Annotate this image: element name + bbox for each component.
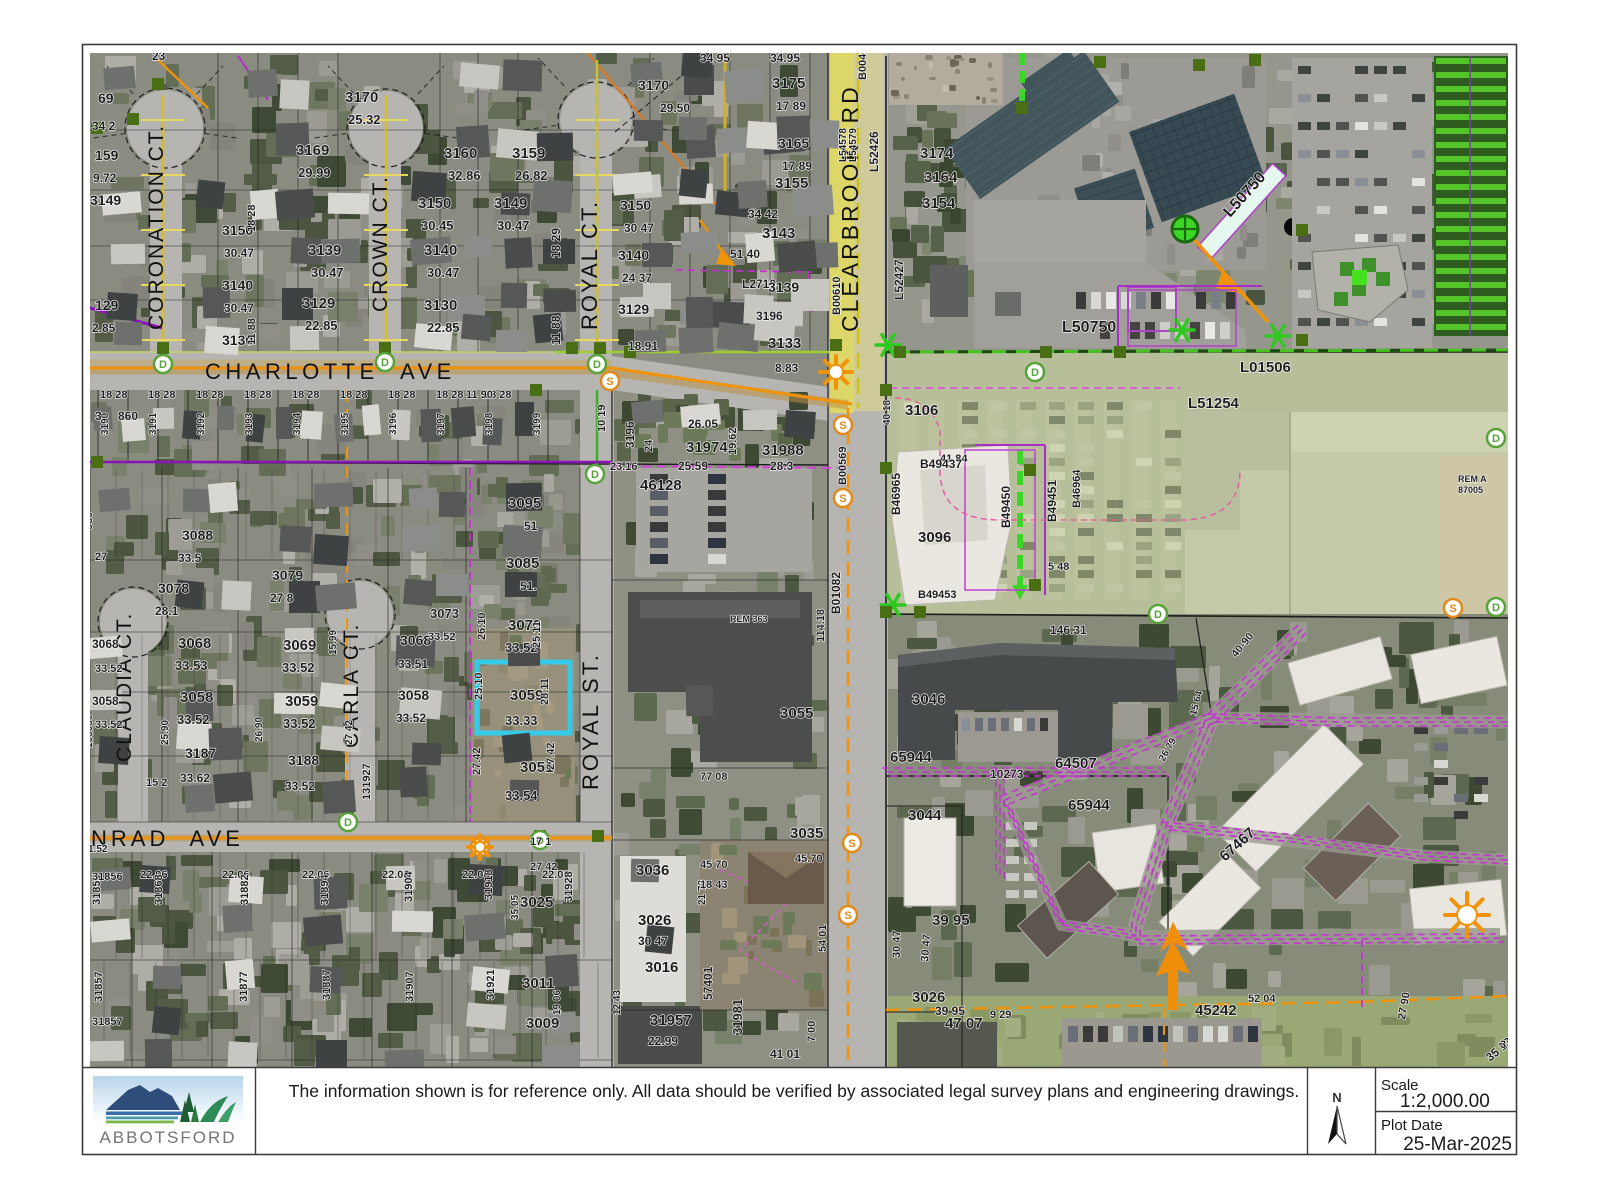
svg-text:29.50: 29.50 bbox=[660, 101, 690, 115]
svg-text:33.52: 33.52 bbox=[95, 663, 123, 675]
svg-text:3193: 3193 bbox=[244, 412, 255, 435]
svg-text:24: 24 bbox=[643, 439, 655, 452]
svg-text:3079: 3079 bbox=[272, 567, 303, 583]
svg-text:L54579: L54579 bbox=[848, 128, 859, 162]
svg-text:ABBOTSFORD: ABBOTSFORD bbox=[99, 1128, 236, 1147]
svg-text:Plot Date: Plot Date bbox=[1381, 1117, 1443, 1134]
svg-text:D: D bbox=[1492, 602, 1500, 614]
svg-text:34.95: 34.95 bbox=[770, 51, 800, 65]
svg-text:28.1: 28.1 bbox=[155, 604, 179, 618]
svg-text:S: S bbox=[844, 910, 851, 922]
svg-text:11 90: 11 90 bbox=[466, 389, 493, 401]
svg-text:25.90: 25.90 bbox=[160, 720, 171, 745]
svg-text:3188: 3188 bbox=[288, 752, 319, 768]
svg-text:3078: 3078 bbox=[158, 580, 189, 596]
svg-text:9 29: 9 29 bbox=[990, 1009, 1011, 1021]
svg-text:30.47: 30.47 bbox=[224, 246, 254, 260]
svg-text:3106: 3106 bbox=[905, 402, 938, 419]
svg-text:18 43: 18 43 bbox=[700, 879, 728, 891]
svg-text:3036: 3036 bbox=[636, 862, 669, 879]
svg-text:3068: 3068 bbox=[178, 635, 211, 652]
svg-text:3129: 3129 bbox=[618, 301, 649, 317]
svg-text:3170: 3170 bbox=[345, 89, 378, 106]
svg-text:27.42: 27.42 bbox=[545, 742, 557, 770]
svg-text:860: 860 bbox=[118, 409, 138, 423]
svg-text:31988: 31988 bbox=[762, 442, 804, 459]
svg-text:18 28: 18 28 bbox=[388, 389, 416, 401]
svg-text:N: N bbox=[1332, 1090, 1341, 1105]
svg-text:17 1: 17 1 bbox=[530, 836, 551, 848]
svg-text:3174: 3174 bbox=[920, 145, 954, 162]
svg-text:3175: 3175 bbox=[772, 75, 805, 92]
svg-text:27: 27 bbox=[95, 551, 107, 563]
svg-text:3192: 3192 bbox=[196, 412, 207, 435]
svg-text:18 28: 18 28 bbox=[292, 389, 320, 401]
svg-text:D: D bbox=[1031, 367, 1039, 379]
svg-text:3068: 3068 bbox=[400, 632, 431, 648]
svg-text:3011: 3011 bbox=[522, 975, 555, 992]
svg-text:3154: 3154 bbox=[922, 195, 956, 212]
svg-text:33.52: 33.52 bbox=[283, 716, 316, 731]
svg-text:3009: 3009 bbox=[526, 1015, 559, 1032]
svg-text:34 95: 34 95 bbox=[700, 51, 730, 65]
svg-text:3058: 3058 bbox=[180, 689, 213, 706]
svg-text:30.47: 30.47 bbox=[311, 265, 344, 280]
svg-text:33.53: 33.53 bbox=[175, 658, 208, 673]
svg-text:30.45: 30.45 bbox=[421, 218, 454, 233]
svg-text:3044: 3044 bbox=[908, 807, 942, 824]
svg-text:15 2: 15 2 bbox=[146, 777, 167, 789]
svg-text:131927: 131927 bbox=[361, 763, 373, 800]
svg-text:3095: 3095 bbox=[508, 495, 541, 512]
svg-text:19.62: 19.62 bbox=[727, 427, 739, 455]
svg-text:3059: 3059 bbox=[285, 693, 318, 710]
svg-text:31918: 31918 bbox=[483, 869, 495, 900]
svg-text:CLAUDIA CT.: CLAUDIA CT. bbox=[113, 612, 136, 762]
svg-text:25.10: 25.10 bbox=[473, 672, 485, 700]
svg-text:3197: 3197 bbox=[436, 412, 447, 435]
svg-text:30.47: 30.47 bbox=[224, 301, 254, 315]
svg-text:B49437: B49437 bbox=[920, 457, 962, 471]
svg-text:3: 3 bbox=[95, 409, 102, 423]
svg-text:30.47: 30.47 bbox=[497, 218, 530, 233]
svg-text:18.91: 18.91 bbox=[628, 339, 658, 353]
svg-text:30.47: 30.47 bbox=[427, 265, 460, 280]
svg-text:22.99: 22.99 bbox=[648, 1034, 678, 1048]
svg-text:114.18: 114.18 bbox=[815, 609, 827, 642]
svg-text:3194: 3194 bbox=[292, 412, 303, 435]
svg-text:3165: 3165 bbox=[778, 135, 809, 151]
svg-text:3: 3 bbox=[1500, 1039, 1506, 1051]
svg-text:3058: 3058 bbox=[92, 694, 119, 708]
svg-text:57401: 57401 bbox=[701, 966, 715, 1000]
svg-text:51 40: 51 40 bbox=[730, 247, 760, 261]
svg-text:3195: 3195 bbox=[340, 412, 351, 435]
svg-text:52 04: 52 04 bbox=[1248, 993, 1276, 1005]
svg-text:S: S bbox=[839, 493, 846, 505]
svg-text:31856: 31856 bbox=[92, 871, 123, 883]
svg-text:L52426: L52426 bbox=[867, 131, 881, 172]
svg-text:L51254: L51254 bbox=[1188, 395, 1240, 412]
svg-text:32.86: 32.86 bbox=[448, 168, 481, 183]
svg-text:1.52: 1.52 bbox=[88, 844, 108, 855]
svg-text:3088: 3088 bbox=[182, 527, 213, 543]
svg-text:S: S bbox=[848, 838, 855, 850]
svg-text:7 00: 7 00 bbox=[806, 1021, 818, 1042]
svg-text:8.83: 8.83 bbox=[775, 361, 799, 375]
svg-text:31907: 31907 bbox=[404, 971, 416, 1002]
svg-text:NRAD AVE: NRAD AVE bbox=[91, 826, 244, 851]
svg-text:3143: 3143 bbox=[762, 225, 795, 242]
svg-text:26.82: 26.82 bbox=[515, 168, 548, 183]
svg-text:D: D bbox=[591, 469, 599, 481]
svg-text:D: D bbox=[1492, 433, 1500, 445]
svg-text:31887: 31887 bbox=[321, 969, 333, 1000]
svg-text:3073: 3073 bbox=[430, 606, 459, 621]
svg-text:3016: 3016 bbox=[645, 959, 678, 976]
svg-text:CHARLOTTE AVE: CHARLOTTE AVE bbox=[205, 359, 456, 384]
svg-text:18 29: 18 29 bbox=[549, 228, 563, 258]
svg-text:15.99: 15.99 bbox=[328, 630, 339, 655]
svg-text:33.62: 33.62 bbox=[180, 771, 210, 785]
svg-text:ROYAL CT.: ROYAL CT. bbox=[577, 200, 602, 330]
svg-text:3169: 3169 bbox=[296, 142, 329, 159]
svg-text:3068: 3068 bbox=[92, 637, 119, 651]
svg-text:31981: 31981 bbox=[730, 999, 745, 1035]
svg-text:34 2: 34 2 bbox=[92, 119, 116, 133]
svg-text:12 43: 12 43 bbox=[612, 990, 623, 1015]
svg-text:45242: 45242 bbox=[1195, 1002, 1237, 1019]
svg-text:B46964: B46964 bbox=[1071, 469, 1083, 508]
svg-text:3035: 3035 bbox=[790, 825, 823, 842]
svg-text:D: D bbox=[593, 359, 601, 371]
svg-text:18 28: 18 28 bbox=[148, 389, 176, 401]
svg-text:3170: 3170 bbox=[638, 77, 669, 93]
svg-text:D: D bbox=[344, 817, 352, 829]
svg-text:28.11: 28.11 bbox=[539, 678, 551, 705]
svg-text:39 95: 39 95 bbox=[932, 912, 970, 929]
svg-text:26.10: 26.10 bbox=[476, 612, 488, 640]
svg-text:5 48: 5 48 bbox=[1048, 561, 1069, 573]
svg-text:3129: 3129 bbox=[302, 295, 335, 312]
svg-text:33.54: 33.54 bbox=[505, 788, 538, 803]
svg-text:S: S bbox=[1449, 603, 1456, 615]
svg-text:3191: 3191 bbox=[148, 412, 159, 435]
svg-text:B00610: B00610 bbox=[831, 276, 843, 315]
svg-text:33.52: 33.52 bbox=[428, 631, 456, 643]
svg-text:3069: 3069 bbox=[283, 637, 316, 654]
svg-text:3155: 3155 bbox=[775, 175, 808, 192]
svg-text:77 08: 77 08 bbox=[700, 771, 728, 783]
svg-text:23.16: 23.16 bbox=[610, 461, 638, 473]
svg-text:10 19: 10 19 bbox=[596, 404, 608, 432]
svg-text:3160: 3160 bbox=[444, 145, 477, 162]
svg-text:24 37: 24 37 bbox=[622, 271, 652, 285]
svg-text:51.: 51. bbox=[520, 579, 537, 593]
svg-text:31974: 31974 bbox=[686, 439, 728, 456]
svg-text:3149: 3149 bbox=[90, 192, 121, 208]
svg-text:11 88: 11 88 bbox=[246, 318, 258, 345]
svg-text:159: 159 bbox=[95, 147, 119, 163]
svg-text:3150: 3150 bbox=[620, 197, 651, 213]
svg-text:B49453: B49453 bbox=[918, 589, 957, 601]
svg-text:30 47: 30 47 bbox=[624, 221, 654, 235]
svg-text:27.42: 27.42 bbox=[471, 747, 483, 775]
svg-text:D: D bbox=[1154, 609, 1162, 621]
svg-text:129: 129 bbox=[95, 297, 119, 313]
svg-text:33.51: 33.51 bbox=[398, 657, 428, 671]
svg-text:22.85: 22.85 bbox=[427, 320, 460, 335]
svg-text:31857: 31857 bbox=[93, 971, 105, 1002]
svg-text:The information shown is for r: The information shown is for reference o… bbox=[289, 1081, 1299, 1101]
svg-text:10273: 10273 bbox=[990, 767, 1024, 781]
svg-text:S: S bbox=[606, 376, 613, 388]
svg-text:31928: 31928 bbox=[563, 871, 575, 902]
svg-text:34 42: 34 42 bbox=[748, 207, 778, 221]
svg-text:18 28: 18 28 bbox=[244, 389, 272, 401]
svg-text:3159: 3159 bbox=[512, 145, 545, 162]
svg-text:18 28: 18 28 bbox=[246, 204, 258, 232]
svg-text:33.52: 33.52 bbox=[396, 711, 426, 725]
svg-text:46128: 46128 bbox=[640, 477, 682, 494]
svg-text:25.11: 25.11 bbox=[531, 621, 543, 648]
svg-text:L52427: L52427 bbox=[892, 259, 906, 300]
svg-text:3140: 3140 bbox=[222, 277, 253, 293]
svg-text:27 42: 27 42 bbox=[530, 861, 558, 873]
svg-text:51: 51 bbox=[524, 519, 538, 533]
svg-text:3130: 3130 bbox=[424, 297, 457, 314]
svg-text:30 47: 30 47 bbox=[919, 934, 933, 962]
svg-text:REM 363: REM 363 bbox=[730, 614, 768, 624]
svg-text:26.05: 26.05 bbox=[688, 417, 718, 431]
svg-text:18 28: 18 28 bbox=[100, 389, 128, 401]
svg-text:33.52: 33.52 bbox=[177, 712, 210, 727]
svg-text:30 47: 30 47 bbox=[638, 934, 668, 948]
svg-text:D: D bbox=[159, 359, 167, 371]
svg-text:3133: 3133 bbox=[768, 335, 801, 352]
svg-text:31904: 31904 bbox=[403, 871, 415, 902]
svg-text:25.59: 25.59 bbox=[678, 459, 708, 473]
svg-text:64507: 64507 bbox=[1055, 755, 1097, 772]
svg-text:33.33: 33.33 bbox=[505, 713, 538, 728]
svg-text:CROWN CT.: CROWN CT. bbox=[369, 175, 392, 312]
svg-text:33.5: 33.5 bbox=[178, 551, 202, 565]
svg-text:L50750: L50750 bbox=[1062, 319, 1116, 336]
svg-text:29.99: 29.99 bbox=[298, 165, 331, 180]
svg-text:25.32: 25.32 bbox=[348, 112, 381, 127]
svg-text:27 8: 27 8 bbox=[270, 591, 294, 605]
svg-text:17.89: 17.89 bbox=[782, 159, 812, 173]
svg-text:33.52: 33.52 bbox=[282, 660, 315, 675]
svg-text:45.70: 45.70 bbox=[795, 853, 823, 865]
svg-text:3140: 3140 bbox=[618, 247, 649, 263]
svg-text:B49451: B49451 bbox=[1045, 480, 1059, 522]
svg-text:31921: 31921 bbox=[485, 969, 497, 1000]
svg-text:30 47: 30 47 bbox=[891, 930, 903, 958]
svg-text:3196: 3196 bbox=[756, 309, 783, 323]
svg-text:3085: 3085 bbox=[506, 555, 539, 572]
svg-text:3096: 3096 bbox=[918, 529, 951, 546]
svg-text:31957: 31957 bbox=[650, 1012, 692, 1029]
svg-text:B00569: B00569 bbox=[837, 446, 849, 485]
svg-text:54 01: 54 01 bbox=[817, 924, 829, 952]
svg-text:17 89: 17 89 bbox=[776, 99, 806, 113]
svg-text:65944: 65944 bbox=[1068, 797, 1110, 814]
svg-text:28.3: 28.3 bbox=[770, 459, 794, 473]
svg-text:25-Mar-2025: 25-Mar-2025 bbox=[1403, 1134, 1512, 1155]
svg-text:1:2,000.00: 1:2,000.00 bbox=[1400, 1091, 1490, 1112]
svg-text:3196: 3196 bbox=[623, 421, 637, 448]
svg-text:3150: 3150 bbox=[418, 195, 451, 212]
svg-text:3055: 3055 bbox=[780, 705, 813, 722]
svg-text:3139: 3139 bbox=[768, 279, 799, 295]
svg-text:41 01: 41 01 bbox=[770, 1047, 800, 1061]
svg-text:31894: 31894 bbox=[319, 874, 331, 905]
svg-text:3149: 3149 bbox=[494, 195, 527, 212]
svg-text:26.90: 26.90 bbox=[254, 717, 265, 742]
svg-text:40 18: 40 18 bbox=[882, 400, 893, 425]
svg-text:87005: 87005 bbox=[1458, 485, 1483, 495]
svg-text:45 70: 45 70 bbox=[700, 859, 728, 871]
svg-text:22.85: 22.85 bbox=[305, 318, 338, 333]
svg-text:31857: 31857 bbox=[92, 1016, 123, 1028]
svg-text:19 06: 19 06 bbox=[552, 990, 563, 1015]
svg-text:B49450: B49450 bbox=[999, 486, 1013, 528]
svg-text:3187: 3187 bbox=[185, 745, 216, 761]
svg-text:31882: 31882 bbox=[239, 874, 251, 905]
svg-text:3198: 3198 bbox=[484, 412, 495, 435]
svg-text:3046: 3046 bbox=[912, 691, 945, 708]
svg-text:S: S bbox=[839, 420, 846, 432]
svg-text:3199: 3199 bbox=[532, 412, 543, 435]
svg-text:18 28: 18 28 bbox=[436, 389, 464, 401]
svg-text:33.52: 33.52 bbox=[95, 719, 123, 731]
svg-text:33.52: 33.52 bbox=[285, 779, 315, 793]
svg-text:47 07: 47 07 bbox=[945, 1015, 983, 1032]
svg-text:27 42: 27 42 bbox=[344, 720, 355, 745]
svg-text:2.85: 2.85 bbox=[92, 321, 116, 335]
svg-text:3025: 3025 bbox=[520, 894, 553, 911]
svg-text:3140: 3140 bbox=[424, 242, 457, 259]
svg-text:3164: 3164 bbox=[924, 169, 958, 186]
svg-text:69: 69 bbox=[98, 90, 114, 106]
svg-text:31877: 31877 bbox=[238, 971, 250, 1002]
svg-text:31868: 31868 bbox=[153, 874, 165, 905]
svg-text:18 28: 18 28 bbox=[196, 389, 224, 401]
svg-text:3139: 3139 bbox=[308, 242, 341, 259]
svg-text:CORONATION CT.: CORONATION CT. bbox=[145, 124, 168, 330]
svg-text:REM A: REM A bbox=[1458, 474, 1487, 484]
svg-text:11 88: 11 88 bbox=[549, 315, 563, 345]
svg-text:9.72: 9.72 bbox=[93, 171, 117, 185]
svg-text:3196: 3196 bbox=[388, 412, 399, 435]
svg-text:146.31: 146.31 bbox=[1050, 623, 1087, 637]
svg-text:18 28: 18 28 bbox=[340, 389, 368, 401]
svg-text:65944: 65944 bbox=[890, 749, 932, 766]
svg-text:B01082: B01082 bbox=[829, 572, 843, 614]
svg-text:3058: 3058 bbox=[398, 687, 429, 703]
svg-text:3026: 3026 bbox=[638, 912, 671, 929]
svg-text:B46965: B46965 bbox=[889, 473, 903, 515]
svg-text:L01506: L01506 bbox=[1240, 359, 1291, 376]
svg-text:ROYAL ST.: ROYAL ST. bbox=[578, 652, 603, 790]
